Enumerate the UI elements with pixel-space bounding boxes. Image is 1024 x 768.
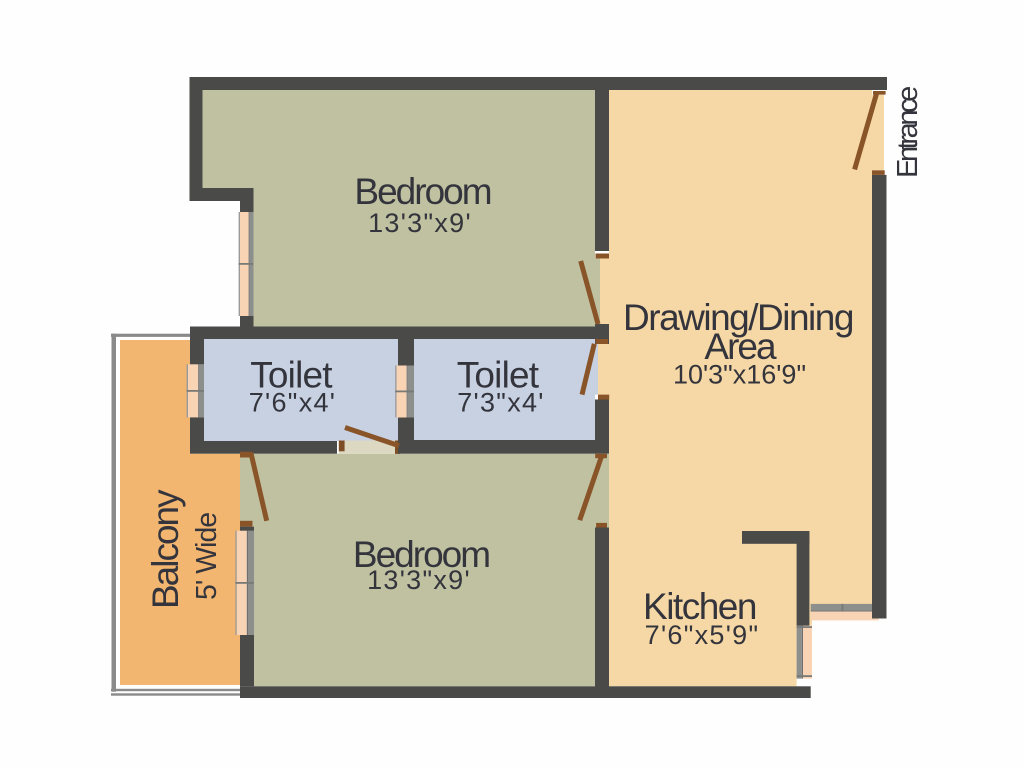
svg-text:7'3"x4': 7'3"x4' xyxy=(457,388,545,418)
svg-text:Balcony: Balcony xyxy=(145,489,186,609)
svg-text:Entrance: Entrance xyxy=(892,87,924,178)
svg-text:13'3"x9': 13'3"x9' xyxy=(368,208,472,238)
svg-text:7'6"x5'9": 7'6"x5'9" xyxy=(645,620,760,650)
svg-text:5' Wide: 5' Wide xyxy=(191,513,223,600)
svg-text:Bedroom: Bedroom xyxy=(354,171,490,212)
svg-text:10'3"x16'9": 10'3"x16'9" xyxy=(673,360,806,390)
svg-text:13'3"x9': 13'3"x9' xyxy=(367,565,471,595)
svg-text:7'6"x4': 7'6"x4' xyxy=(249,388,337,418)
